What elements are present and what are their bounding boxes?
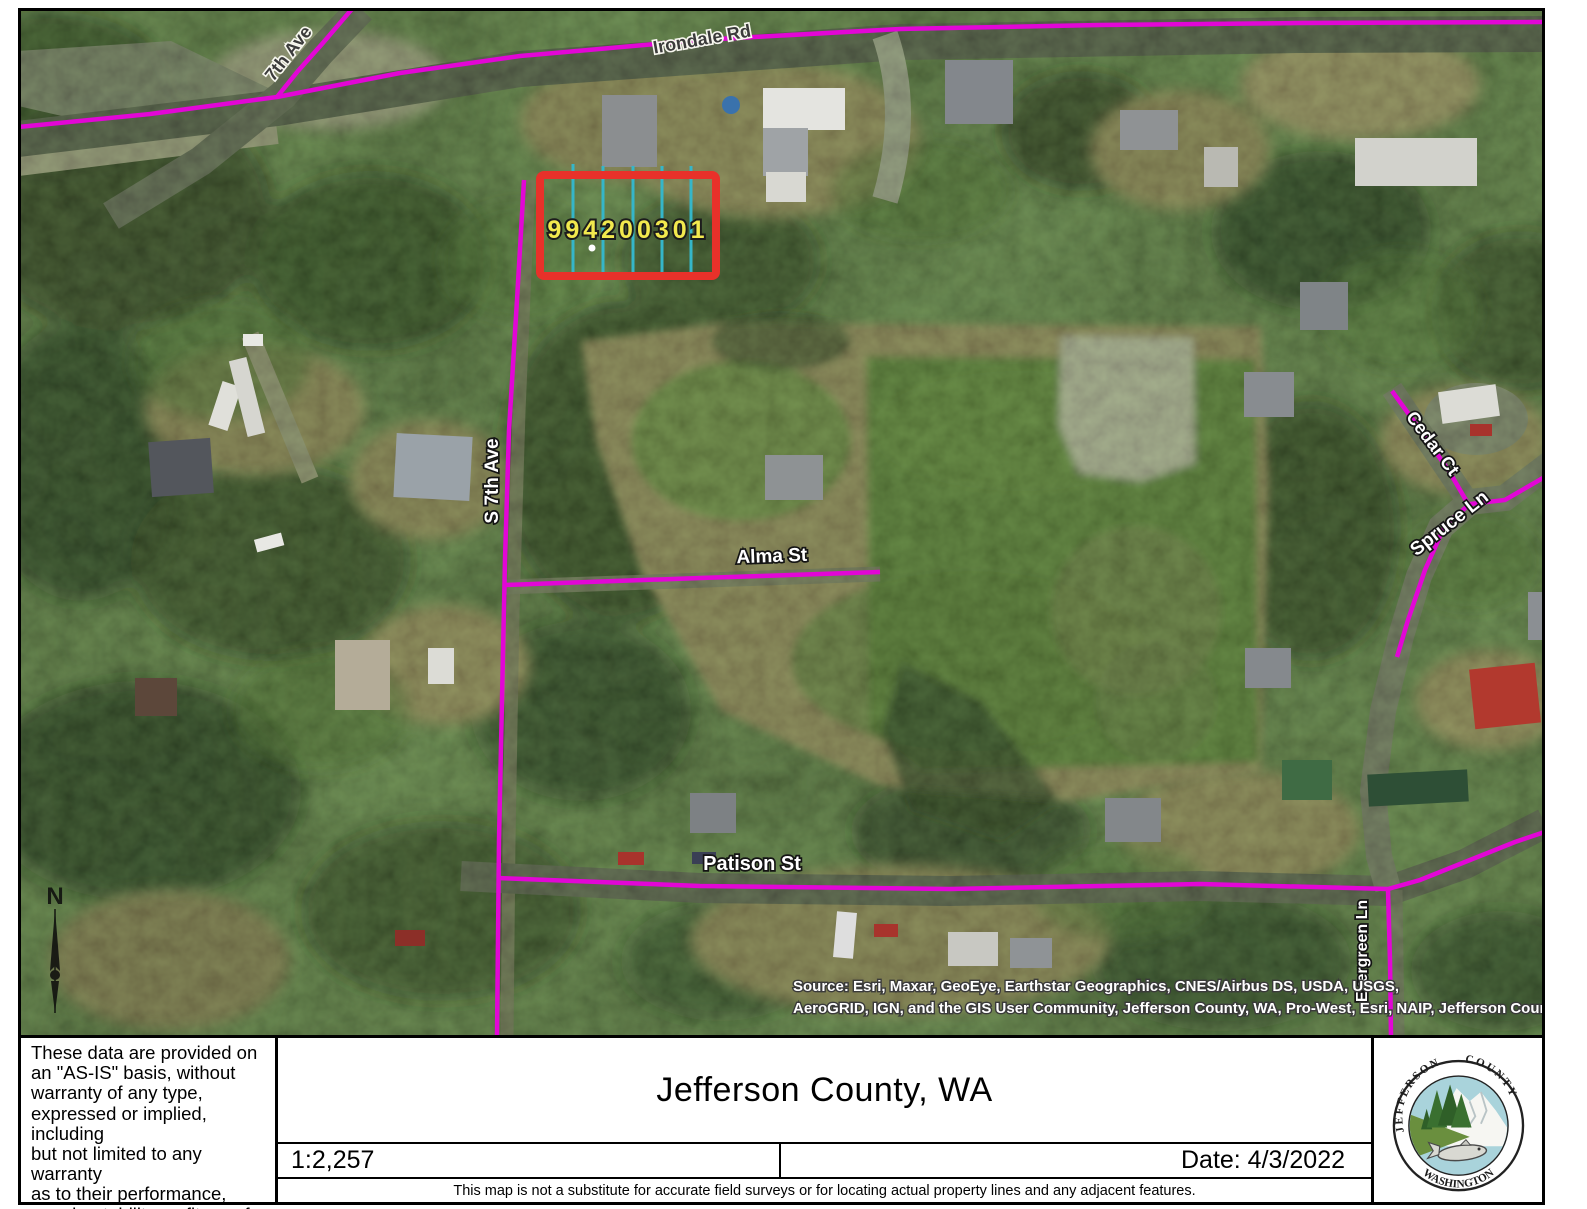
map-frame: 994200301 7th Ave Irondale Rd S 7th Ave … [18,8,1545,1205]
north-arrow-label: N [46,883,63,910]
disclaimer-line: These data are provided on [31,1043,273,1063]
scale-date-row: 1:2,257 Date: 4/3/2022 [278,1142,1371,1179]
county-seal-box: JEFFERSON COUNTY WASHINGTON [1371,1038,1542,1202]
parcel-id-label: 994200301 [547,216,708,244]
street-label-s-7th-ave: S 7th Ave [482,438,503,523]
disclaimer-line: merchantability, or fitness for [31,1205,273,1209]
map-view: 994200301 7th Ave Irondale Rd S 7th Ave … [21,11,1542,1035]
aerial-photo: 994200301 7th Ave Irondale Rd S 7th Ave … [21,11,1542,1035]
jefferson-county-seal: JEFFERSON COUNTY WASHINGTON [1378,1041,1538,1199]
map-scale: 1:2,257 [278,1144,781,1177]
layout-footer: These data are provided on an "AS-IS" ba… [21,1035,1542,1202]
survey-note: This map is not a substitute for accurat… [278,1179,1371,1202]
disclaimer-line: an "AS-IS" basis, without [31,1063,273,1083]
attribution-line-1: Source: Esri, Maxar, GeoEye, Earthstar G… [793,978,1399,995]
disclaimer-line: as to their performance, [31,1184,273,1204]
map-sheet: 994200301 7th Ave Irondale Rd S 7th Ave … [0,0,1587,1209]
map-title: Jefferson County, WA [278,1038,1371,1142]
disclaimer-line: warranty of any type, [31,1083,273,1103]
title-block: Jefferson County, WA 1:2,257 Date: 4/3/2… [278,1038,1371,1202]
disclaimer-line: but not limited to any warranty [31,1144,273,1184]
map-date: Date: 4/3/2022 [781,1144,1371,1177]
disclaimer-line: expressed or implied, including [31,1104,273,1144]
attribution-line-2: AeroGRID, IGN, and the GIS User Communit… [793,1000,1542,1017]
street-label-patison-st: Patison St [703,853,801,875]
street-label-alma-st: Alma St [736,545,808,568]
disclaimer-box: These data are provided on an "AS-IS" ba… [21,1038,278,1202]
